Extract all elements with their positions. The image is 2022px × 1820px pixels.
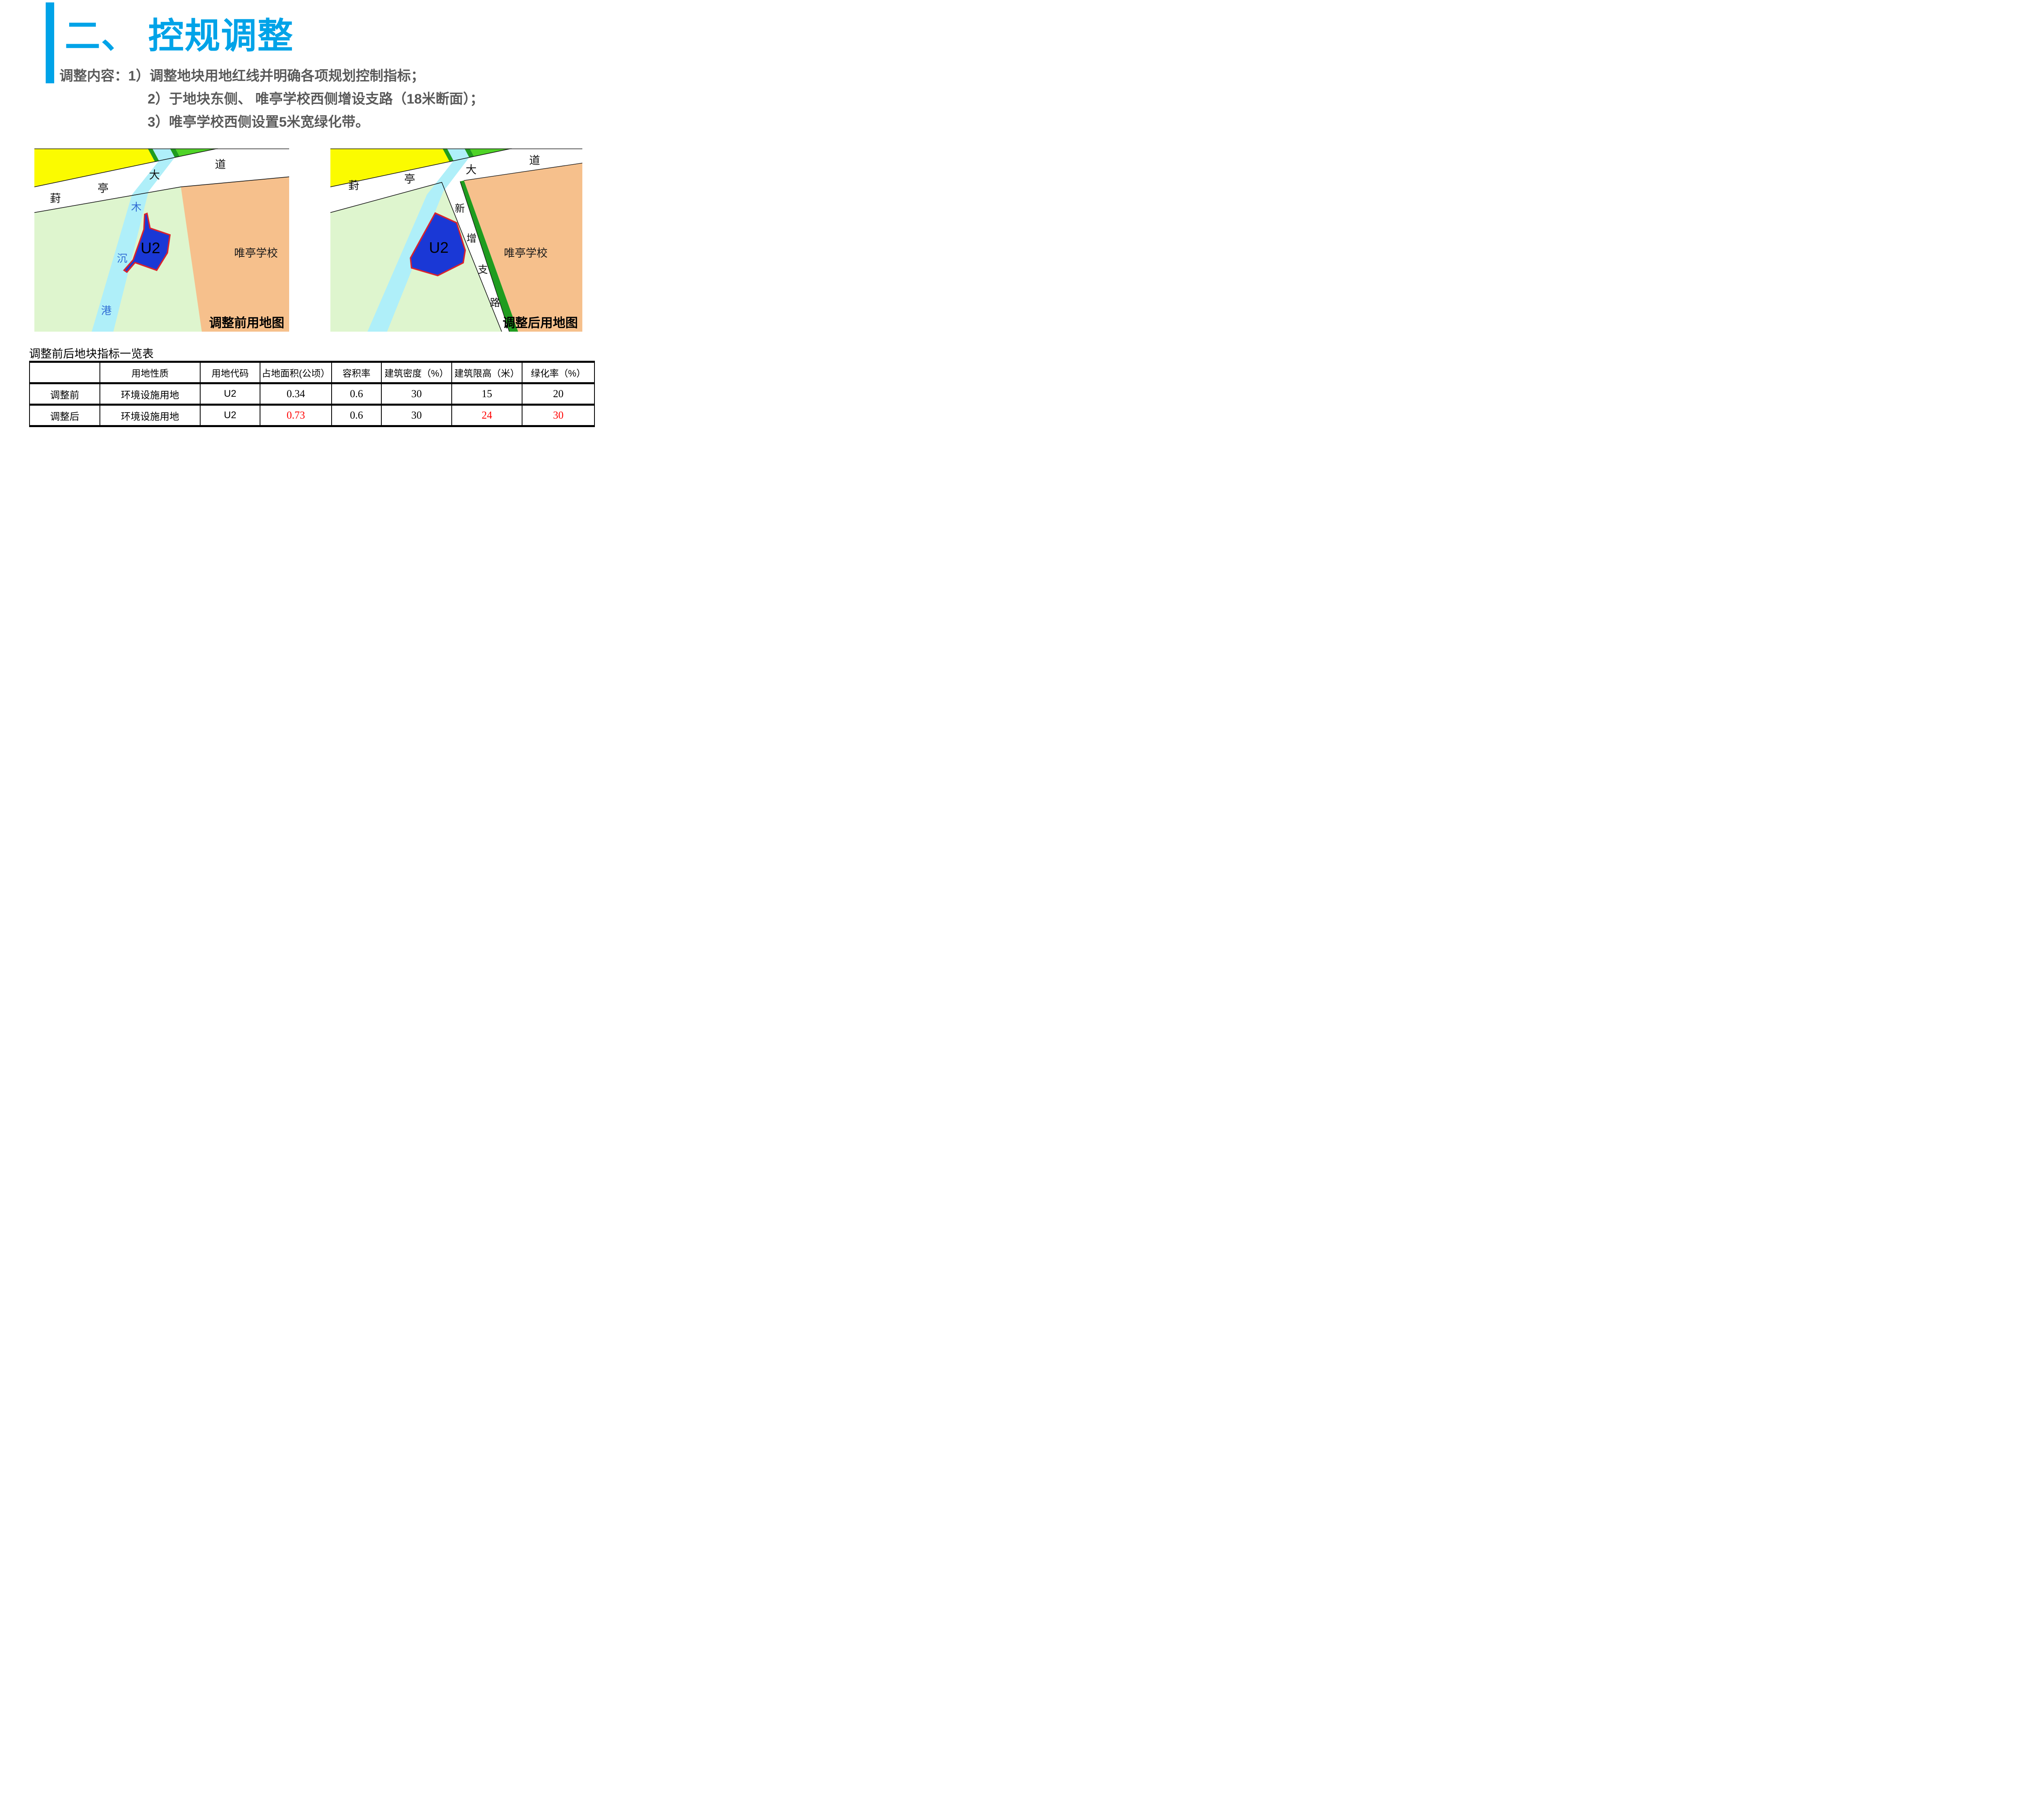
table-cell: U2 [200, 405, 260, 426]
row-label: 调整前 [30, 383, 100, 405]
table-cell: 20 [522, 383, 594, 405]
indicator-table: 用地性质 用地代码 占地面积(公顷） 容积率 建筑密度（%） 建筑限高（米） 绿… [29, 361, 595, 427]
u2-parcel-label: U2 [429, 239, 449, 256]
school-label: 唯亭学校 [234, 247, 278, 259]
table-header-cell: 绿化率（%） [522, 362, 594, 383]
table-title: 调整前后地块指标一览表 [29, 345, 154, 361]
school-label: 唯亭学校 [504, 247, 548, 259]
new-road-label: 增 [466, 233, 476, 244]
table-header-cell: 建筑限高（米） [452, 362, 522, 383]
row-label: 调整后 [30, 405, 100, 426]
u2-parcel-label: U2 [141, 240, 161, 257]
title-accent-bar [46, 2, 54, 83]
map-caption: 调整后用地图 [503, 316, 578, 330]
road-label: 大 [149, 169, 160, 181]
map-before-svg: 葑 亭 大 道 木 沉 港 U2 唯亭学校 调整前用地图 [34, 148, 289, 332]
road-label: 亭 [404, 173, 415, 185]
table-header-cell [30, 362, 100, 383]
road-label: 葑 [349, 180, 360, 192]
table-cell-highlighted: 30 [522, 405, 594, 426]
table-header-cell: 建筑密度（%） [381, 362, 452, 383]
canal-label: 港 [101, 305, 112, 317]
page-title: 二、 控规调整 [65, 7, 294, 59]
new-road-label: 新 [455, 203, 465, 214]
slide: 二、 控规调整 调整内容：1）调整地块用地红线并明确各项规划控制指标； 2）于地… [0, 0, 607, 455]
table-row-after: 调整后 环境设施用地 U2 0.73 0.6 30 24 30 [30, 405, 594, 426]
table-header-cell: 用地代码 [200, 362, 260, 383]
table-cell: 环境设施用地 [100, 383, 200, 405]
canal-label: 沉 [117, 252, 127, 265]
intro-line-3: 3）唯亭学校西侧设置5米宽绿化带。 [148, 111, 369, 131]
table-cell: 0.6 [332, 383, 381, 405]
intro-line-1: 调整内容：1）调整地块用地红线并明确各项规划控制指标； [59, 65, 425, 85]
table-cell: 0.6 [332, 405, 381, 426]
table-cell: 30 [381, 383, 452, 405]
table-cell: 15 [452, 383, 522, 405]
canal-label: 木 [131, 201, 142, 213]
road-label: 亭 [98, 182, 109, 195]
table-header-cell: 占地面积(公顷） [260, 362, 332, 383]
map-after-svg: 葑 亭 大 道 新 增 支 路 U2 唯亭学校 调整后用地图 [330, 148, 582, 332]
road-label: 道 [215, 159, 226, 171]
table-row-before: 调整前 环境设施用地 U2 0.34 0.6 30 15 20 [30, 383, 594, 405]
table-header-row: 用地性质 用地代码 占地面积(公顷） 容积率 建筑密度（%） 建筑限高（米） 绿… [30, 362, 594, 383]
table-cell: 30 [381, 405, 452, 426]
table-cell-highlighted: 0.73 [260, 405, 332, 426]
map-caption: 调整前用地图 [209, 316, 284, 330]
intro-line-2: 2）于地块东侧、 唯亭学校西侧增设支路（18米断面）； [148, 88, 484, 108]
table-header-cell: 容积率 [332, 362, 381, 383]
table-cell: 0.34 [260, 383, 332, 405]
road-label: 葑 [50, 193, 61, 205]
new-road-label: 支 [478, 264, 488, 275]
table-cell: U2 [200, 383, 260, 405]
map-before-adjustment: 葑 亭 大 道 木 沉 港 U2 唯亭学校 调整前用地图 [34, 148, 289, 332]
table-cell-highlighted: 24 [452, 405, 522, 426]
road-label: 大 [466, 164, 477, 176]
road-label: 道 [529, 154, 540, 167]
new-road-label: 路 [490, 297, 500, 309]
table-cell: 环境设施用地 [100, 405, 200, 426]
map-after-adjustment: 葑 亭 大 道 新 增 支 路 U2 唯亭学校 调整后用地图 [330, 148, 582, 332]
table-header-cell: 用地性质 [100, 362, 200, 383]
